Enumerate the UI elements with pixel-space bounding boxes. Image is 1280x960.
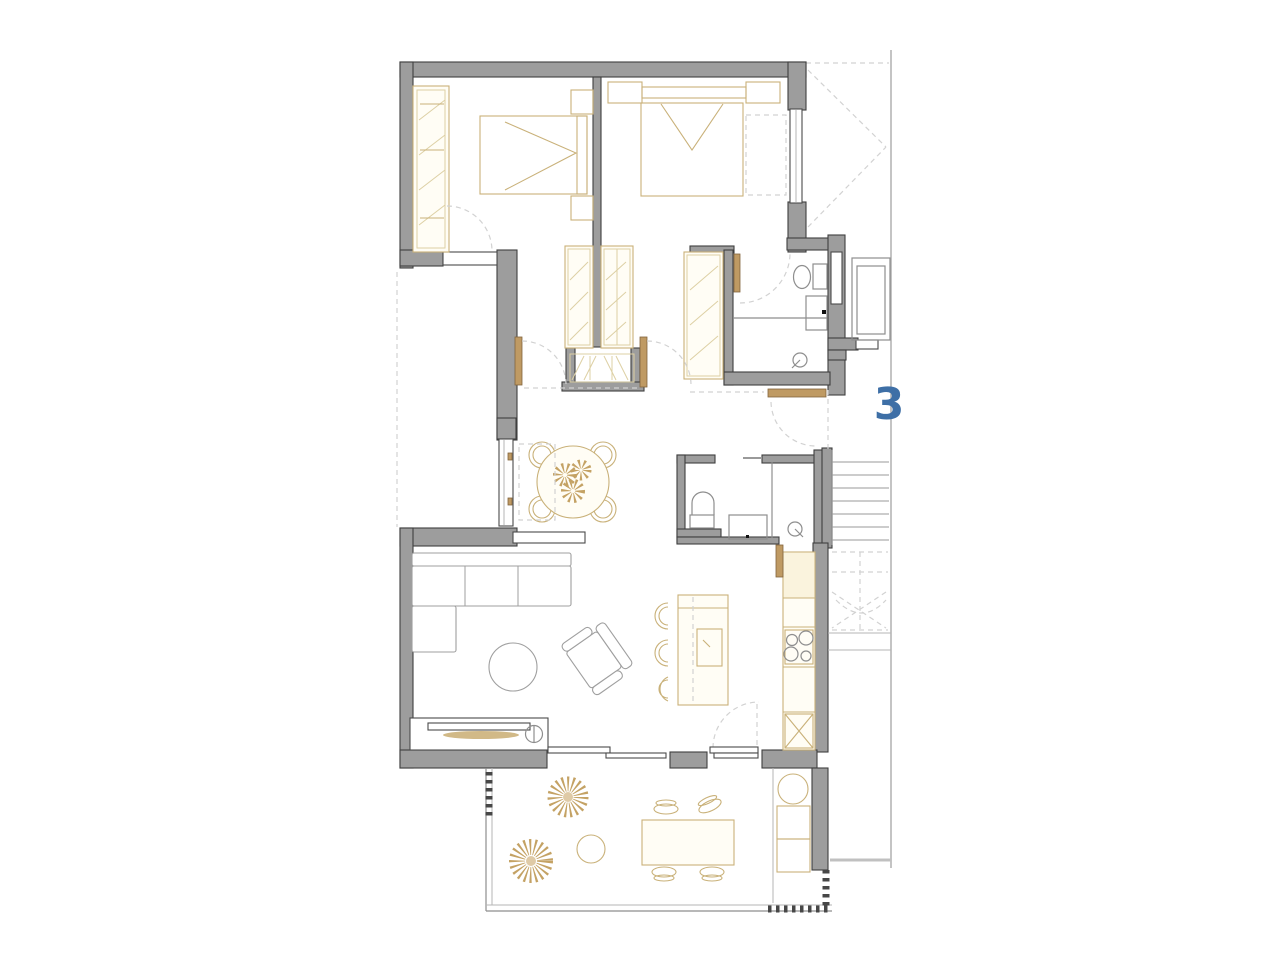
door-leaf-hall-left <box>515 337 522 385</box>
terrace-dining <box>642 793 734 881</box>
stair-landing-dashed <box>832 552 888 630</box>
slider-panel-2b <box>714 753 758 758</box>
armchair <box>561 617 637 696</box>
window-dining <box>499 439 513 526</box>
wall-terrace-pier <box>670 752 707 768</box>
bedroom-1 <box>413 86 593 252</box>
plant-pot-plain <box>577 835 605 863</box>
terrace-sliding-doors <box>548 747 758 758</box>
wall-jog-2 <box>828 350 846 360</box>
slider-panel-2a <box>710 747 758 753</box>
door-swing-kitchen <box>713 702 759 748</box>
sliding-door-bath1 <box>768 389 826 397</box>
wall-kitchen-bottom <box>762 750 817 768</box>
wardrobe-dashed <box>746 115 786 195</box>
kitchen <box>655 552 815 750</box>
wardrobe-bedroom1 <box>413 86 449 252</box>
bed-double-1 <box>480 116 587 194</box>
wall-living-bottom <box>400 750 547 768</box>
wall-stairs-left <box>822 448 832 548</box>
soundbar <box>443 731 519 739</box>
wall-bedroom-divider <box>593 77 601 347</box>
elevator <box>852 258 890 340</box>
island-stools <box>655 603 668 701</box>
toilet1-tank <box>813 264 827 289</box>
wall-slot <box>856 340 878 349</box>
door-leaf-bath1 <box>734 254 740 292</box>
wall-top <box>400 62 806 77</box>
door-swing-bedroom1 <box>447 206 492 251</box>
slider-panel-1a <box>548 747 610 753</box>
wall-bath1-bottom <box>724 372 830 385</box>
door-swing-bath1 <box>740 253 790 303</box>
door-swing-stairs <box>771 390 828 452</box>
bathroom-1 <box>733 253 827 368</box>
niche-closet <box>570 354 634 382</box>
wall-bath1-left <box>724 250 733 385</box>
floor-plan-canvas: 3 <box>0 0 1280 960</box>
bedroom-2 <box>608 82 786 196</box>
planter-pot <box>778 774 808 804</box>
neighbour-stairs <box>828 633 891 650</box>
tall-cabinet <box>783 552 815 598</box>
wall-dining-left-upper <box>497 418 516 439</box>
terrace <box>486 768 832 911</box>
shaft-niche <box>831 252 842 304</box>
door-leaves <box>515 254 828 577</box>
dashed-neighbour-chevron <box>808 70 886 227</box>
planter-box-1 <box>777 806 810 839</box>
sofa-l-shape <box>412 553 571 652</box>
wall-bath1-top-right <box>787 238 830 250</box>
wardrobe-bath-corridor <box>684 252 723 379</box>
elevator-cab <box>857 266 885 334</box>
wall-hall-left <box>497 250 517 440</box>
vanity1-tap <box>822 310 826 314</box>
wall-bath2-bottom <box>677 537 779 544</box>
door-pocket-bedroom1 <box>443 252 497 265</box>
toilet2-tank <box>690 515 714 528</box>
tv-screen <box>428 723 530 730</box>
tv-console <box>410 718 548 750</box>
terrace-table <box>642 820 734 865</box>
wall-top-right-corner <box>788 62 806 110</box>
wall-living-top <box>400 528 517 546</box>
window-handle-2 <box>508 498 512 505</box>
door-swing-hall-left <box>522 341 566 385</box>
terrace-plants <box>517 784 605 875</box>
wardrobe-column-left <box>565 246 593 348</box>
toilet2-bowl <box>692 492 714 515</box>
wall-niche-bottom <box>562 382 644 391</box>
wall-terrace-right <box>812 768 828 870</box>
door-leaf-kitchen <box>776 545 783 577</box>
vanity2-tap <box>746 535 749 538</box>
unit-number-label: 3 <box>874 379 905 430</box>
bathroom-2 <box>690 458 803 539</box>
bed-double-2 <box>641 103 743 196</box>
window-handle-1 <box>508 453 512 460</box>
door-leaf-hall-right <box>640 337 647 387</box>
stair-treads <box>832 462 889 540</box>
wall-bath2-top-right <box>762 455 818 463</box>
slider-panel-1b <box>606 753 666 758</box>
wardrobe-column-right <box>601 246 633 348</box>
living-room <box>410 553 636 750</box>
nightstand-1b <box>571 196 593 220</box>
low-console <box>513 532 585 543</box>
coffee-table-round <box>489 643 537 691</box>
wall-bath2-bottom-step <box>677 529 721 537</box>
planter-box-2 <box>777 839 810 872</box>
elevator-shaft <box>852 258 890 340</box>
floor-plan-drawing: 3 <box>0 0 1280 960</box>
nightstand-1a <box>571 90 593 114</box>
toilet1-bowl <box>794 266 811 289</box>
kitchen-island <box>678 595 728 705</box>
wall-left-bedroom1 <box>400 62 413 268</box>
headboard-unit <box>608 82 780 103</box>
planter-units <box>777 774 810 872</box>
kitchen-counter <box>783 552 815 750</box>
